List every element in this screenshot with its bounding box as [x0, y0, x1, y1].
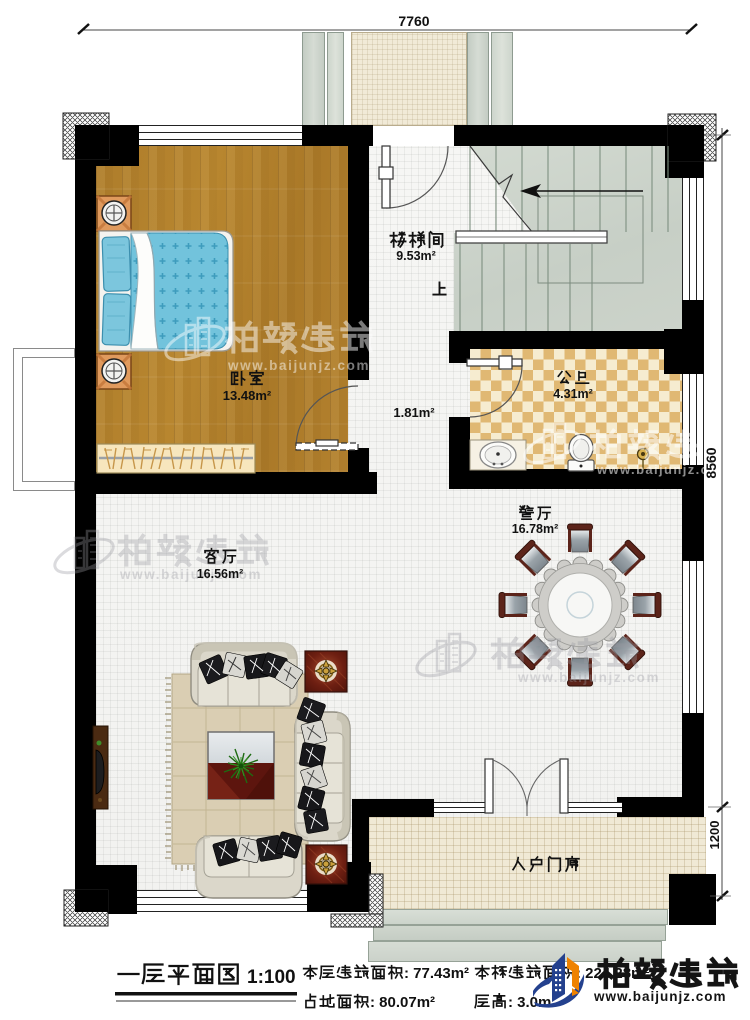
svg-text:www.baijunjz.com: www.baijunjz.com: [593, 989, 727, 1004]
svg-text:16.56m²: 16.56m²: [197, 567, 244, 581]
svg-text:1200: 1200: [707, 821, 722, 850]
svg-text:4.31m²: 4.31m²: [553, 387, 593, 401]
svg-text:: 3.0m: : 3.0m: [508, 994, 551, 1011]
svg-text:13.48m²: 13.48m²: [223, 388, 272, 403]
svg-text:8560: 8560: [703, 447, 719, 478]
svg-text:16.78m²: 16.78m²: [512, 522, 559, 536]
svg-text:www.baijunjz.com: www.baijunjz.com: [517, 670, 660, 685]
svg-text:www.baijunjz.com: www.baijunjz.com: [227, 358, 370, 373]
svg-text:7760: 7760: [398, 13, 429, 29]
svg-text:9.53m²: 9.53m²: [396, 249, 436, 263]
svg-text:: 77.43m²: : 77.43m²: [404, 965, 469, 982]
svg-text:1.81m²: 1.81m²: [393, 405, 435, 420]
svg-text:1:100: 1:100: [247, 967, 296, 988]
svg-text:: 80.07m²: : 80.07m²: [370, 994, 435, 1011]
